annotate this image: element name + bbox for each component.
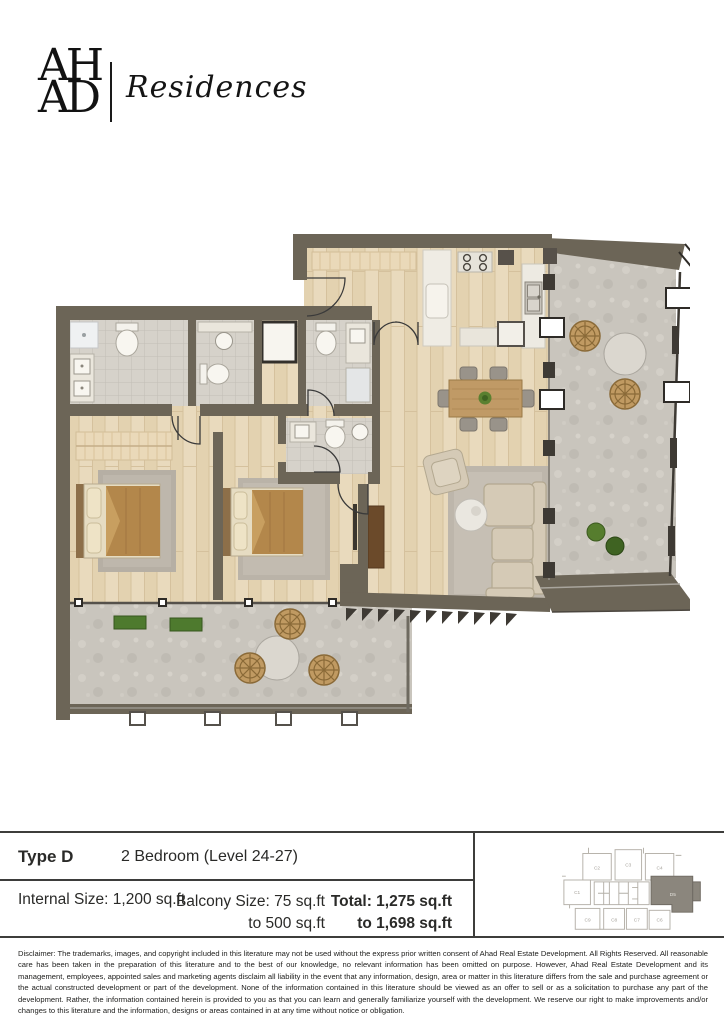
stove-icon [458,252,492,272]
sofa [484,482,546,598]
total-size-line2: to 1,698 sq.ft [300,913,452,935]
dining-chair [460,367,477,380]
key-plan-unit-label: C8 [611,918,617,924]
rattan-chair [570,321,600,351]
tv-console [368,506,384,568]
dining-chair [490,418,507,431]
floor-plan-drawing [40,226,690,751]
key-plan-unit-label: C2 [594,866,600,872]
toilet-icon [116,323,138,356]
bedroom2-bed [223,488,303,556]
rattan-chair [235,653,265,683]
floor-plan [40,226,690,751]
logo-divider [110,62,112,122]
footer-top-rule [0,831,724,833]
plant-icon [587,523,605,541]
dining-chair [460,418,477,431]
key-plan-unit-label: C4 [657,866,663,872]
round-basin-icon [216,333,233,350]
key-plan-unit-label: C1 [574,890,580,896]
dining-chair [521,390,534,407]
balcony-right-floor [548,254,676,578]
shaft-closet [262,322,296,362]
toilet-icon [316,323,336,355]
key-plan-unit-label: C9 [585,918,591,924]
rattan-chair [610,379,640,409]
key-plan-unit-label: C3 [625,863,631,869]
balcony-table [604,333,646,375]
dining-chair [490,367,507,380]
key-plan-unit-label: C6 [657,918,663,924]
plant-icon [606,537,624,555]
footer-mid-rule [0,879,473,881]
kitchen-counter2 [460,328,498,346]
master-bed [76,484,160,558]
total-size-line1: Total: 1,275 sq.ft [300,891,452,913]
kitchen-column [498,250,514,265]
master-wardrobe [76,432,172,460]
key-plan-highlighted-label: D5 [670,892,676,898]
kitchen-island [498,322,524,346]
double-vanity [70,354,94,402]
key-plan: C1 C2 C3 C4 C6 C7 C8 C9 D5 [556,844,712,934]
shower [346,368,370,402]
entry-closet [312,252,416,270]
unit-type-label: Type D [18,847,73,867]
total-size: Total: 1,275 sq.ft to 1,698 sq.ft [300,891,452,935]
unit-description: 2 Bedroom (Level 24-27) [121,848,298,866]
footer-vertical-rule [473,831,475,936]
monogram-line2: AD [38,82,100,114]
round-basin-icon [352,424,368,440]
footer-bottom-rule [0,936,724,938]
disclaimer-text: Disclaimer: The trademarks, images, and … [18,948,708,1016]
toilet-icon [325,420,345,448]
key-plan-unit-label: C7 [634,918,640,924]
brand-logo: AH AD Residences [38,48,298,138]
rattan-chair [275,609,305,639]
brand-wordmark: Residences [126,70,308,105]
planter-icon [170,618,202,631]
kitchen-sink-icon [525,282,542,314]
fridge [426,284,448,318]
rattan-chair [309,655,339,685]
coffee-table [455,499,487,531]
key-plan-drawing: C1 C2 C3 C4 C6 C7 C8 C9 D5 [556,844,712,934]
brochure-page: AH AD Residences [0,0,724,1024]
internal-size: Internal Size: 1,200 sq.ft [18,891,185,909]
toilet-icon [200,364,229,384]
ahad-monogram: AH AD [38,50,100,113]
planter-icon [114,616,146,629]
